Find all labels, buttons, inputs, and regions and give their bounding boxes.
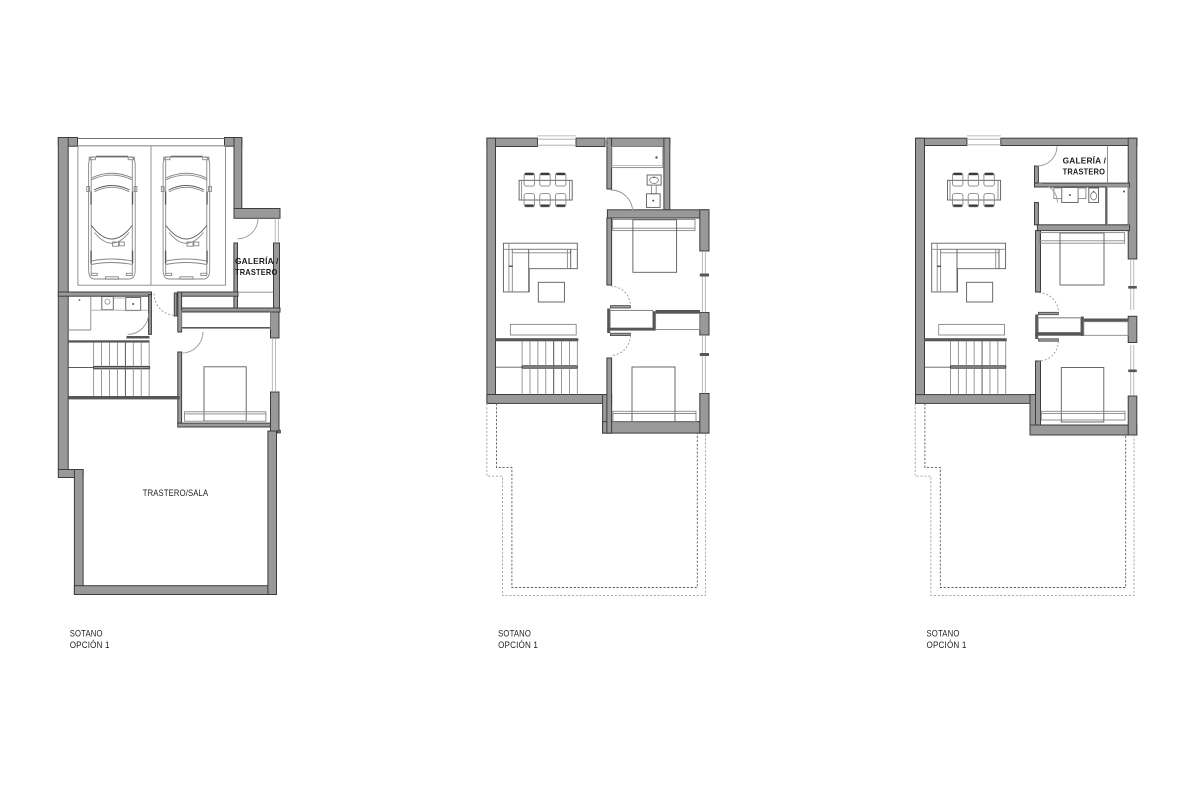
svg-text:TRASTERO: TRASTERO	[1063, 167, 1106, 176]
svg-text:TRASTERO: TRASTERO	[235, 268, 278, 277]
svg-text:OPCIÓN 1: OPCIÓN 1	[927, 640, 967, 650]
svg-text:SOTANO: SOTANO	[498, 629, 531, 639]
svg-text:TRASTERO/SALA: TRASTERO/SALA	[143, 488, 209, 499]
svg-text:GALERÍA /: GALERÍA /	[235, 256, 279, 266]
svg-text:SOTANO: SOTANO	[927, 629, 960, 639]
svg-text:OPCIÓN 1: OPCIÓN 1	[70, 640, 110, 650]
svg-text:GALERÍA /: GALERÍA /	[1063, 155, 1107, 165]
svg-text:OPCIÓN 1: OPCIÓN 1	[498, 640, 538, 650]
svg-text:SOTANO: SOTANO	[70, 629, 103, 639]
